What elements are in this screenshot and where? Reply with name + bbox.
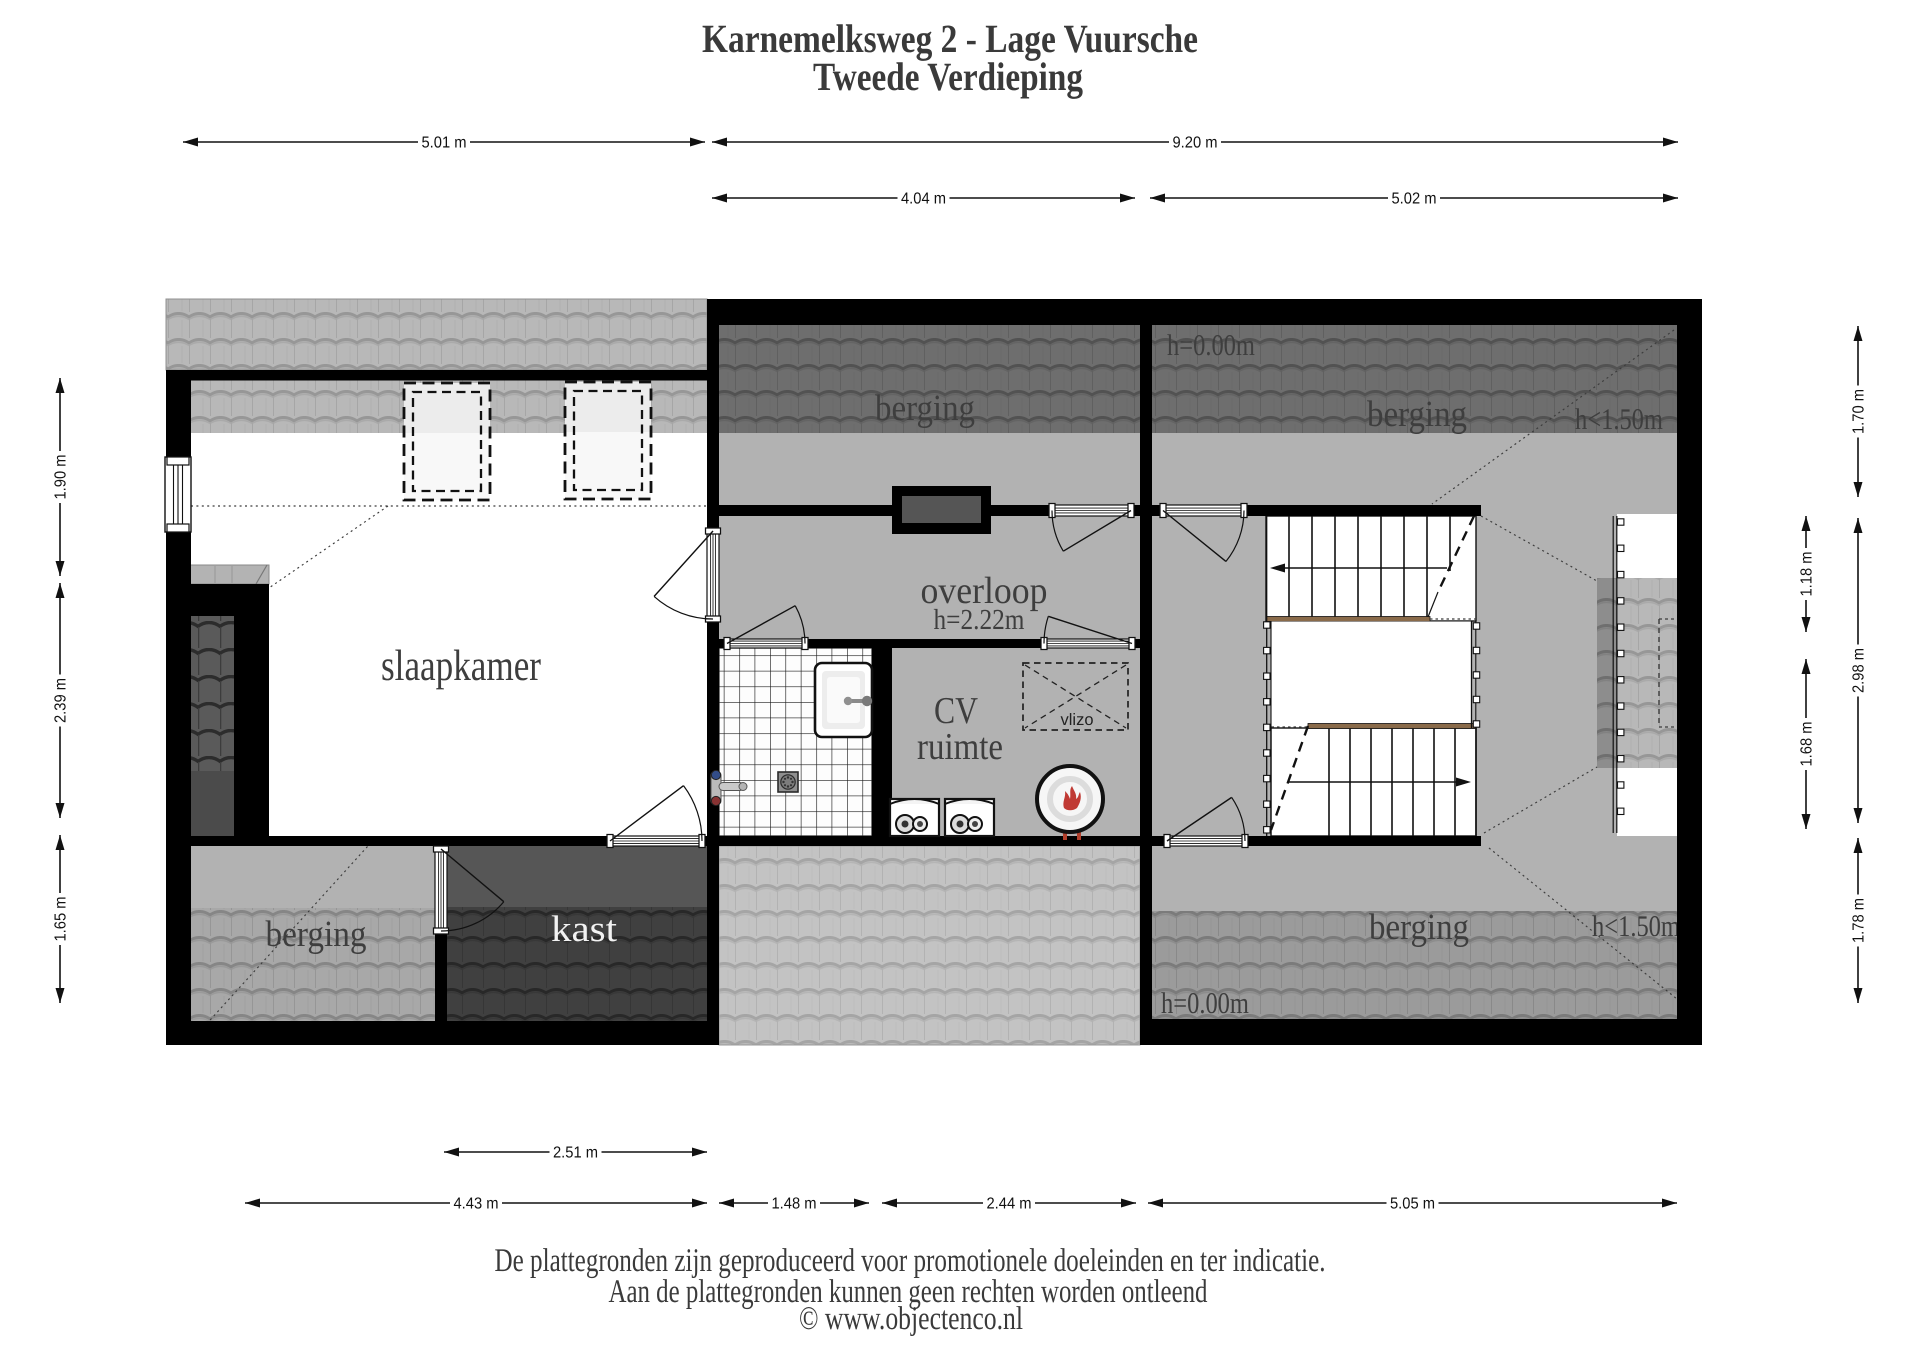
svg-text:5.01 m: 5.01 m xyxy=(422,135,467,152)
svg-text:1.48 m: 1.48 m xyxy=(772,1196,817,1213)
svg-text:h=2.22m: h=2.22m xyxy=(934,604,1025,636)
svg-text:Tweede Verdieping: Tweede Verdieping xyxy=(813,54,1083,99)
svg-text:berging: berging xyxy=(266,914,367,955)
svg-text:kast: kast xyxy=(551,909,618,950)
svg-text:h<1.50m: h<1.50m xyxy=(1575,403,1663,436)
svg-text:1.78 m: 1.78 m xyxy=(1851,898,1868,943)
svg-text:5.02 m: 5.02 m xyxy=(1392,191,1437,208)
svg-text:1.18 m: 1.18 m xyxy=(1799,552,1816,597)
svg-text:vlizo: vlizo xyxy=(1061,711,1094,729)
svg-text:slaapkamer: slaapkamer xyxy=(381,641,541,690)
svg-text:2.44 m: 2.44 m xyxy=(987,1196,1032,1213)
svg-text:5.05 m: 5.05 m xyxy=(1390,1196,1435,1213)
svg-text:1.68 m: 1.68 m xyxy=(1799,722,1816,767)
svg-text:1.90 m: 1.90 m xyxy=(53,455,70,500)
svg-text:9.20 m: 9.20 m xyxy=(1173,135,1218,152)
svg-text:4.43 m: 4.43 m xyxy=(454,1196,499,1213)
svg-text:2.39 m: 2.39 m xyxy=(53,678,70,723)
svg-text:1.65 m: 1.65 m xyxy=(53,897,70,942)
svg-text:1.70 m: 1.70 m xyxy=(1851,389,1868,434)
svg-text:© www.objectenco.nl: © www.objectenco.nl xyxy=(799,1301,1023,1337)
svg-text:4.04 m: 4.04 m xyxy=(901,191,946,208)
svg-text:berging: berging xyxy=(1367,394,1467,435)
svg-text:2.51 m: 2.51 m xyxy=(553,1145,598,1162)
svg-text:h<1.50m: h<1.50m xyxy=(1592,910,1680,943)
svg-text:berging: berging xyxy=(875,388,975,429)
svg-text:2.98 m: 2.98 m xyxy=(1851,648,1868,693)
svg-text:h=0.00m: h=0.00m xyxy=(1161,987,1249,1020)
svg-text:h=0.00m: h=0.00m xyxy=(1167,329,1255,362)
svg-text:ruimte: ruimte xyxy=(917,726,1003,768)
svg-text:berging: berging xyxy=(1369,907,1469,948)
